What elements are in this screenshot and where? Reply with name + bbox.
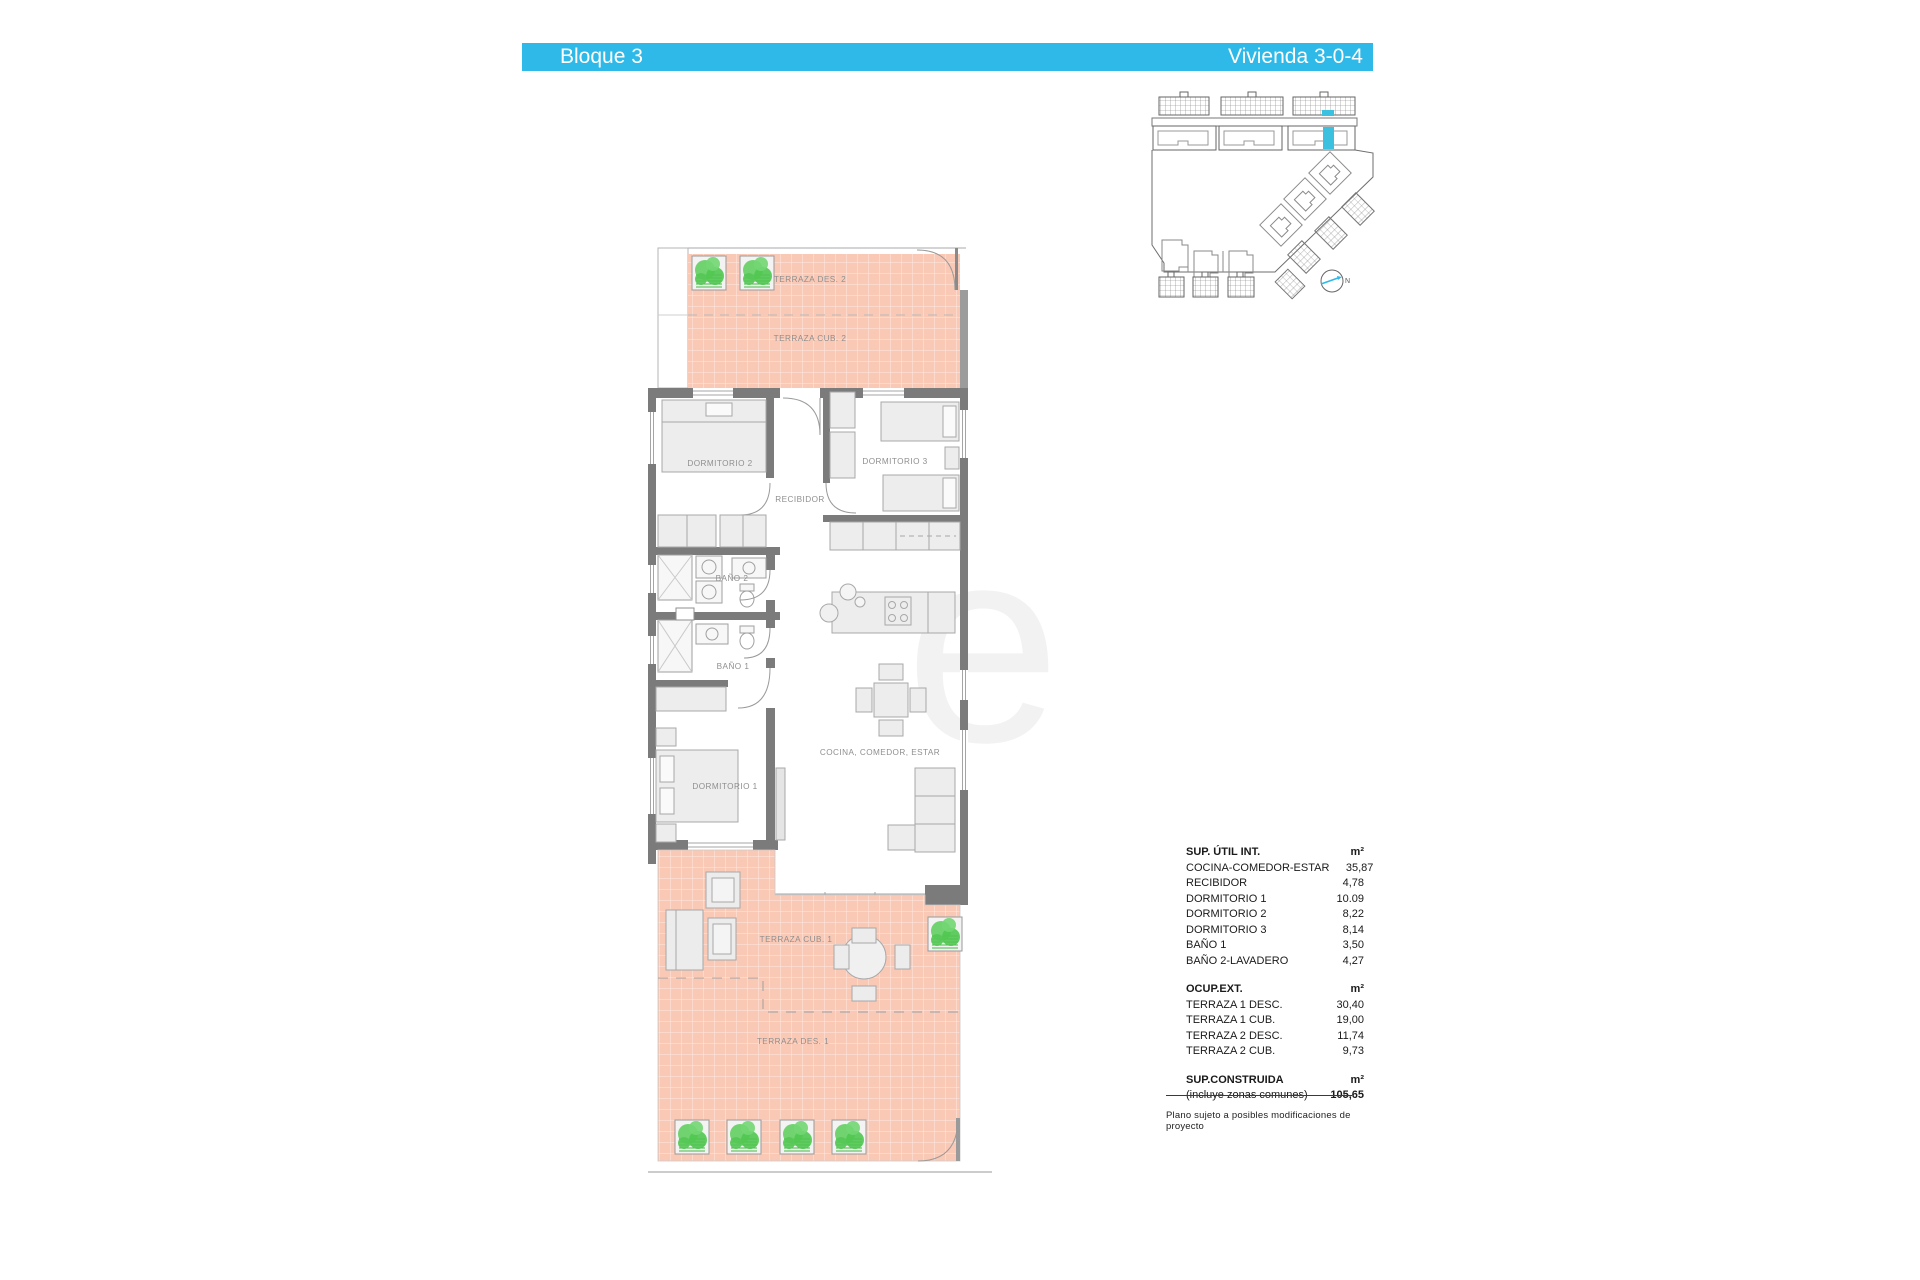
room-label-bano-2: BAÑO 2: [716, 573, 749, 583]
plant-icon: [780, 1120, 814, 1154]
room-label-terraza-cub-2: TERRAZA CUB. 2: [774, 334, 847, 343]
site-key-plan: N: [1140, 85, 1380, 317]
room-label-terraza-cub-1: TERRAZA CUB. 1: [760, 935, 833, 944]
site-strip: [1152, 118, 1357, 126]
plant-icon: [692, 256, 726, 290]
terrace-1-floor: [658, 850, 960, 1161]
room-label-dormitorio-2: DORMITORIO 2: [687, 459, 752, 468]
header-bar: Bloque 3 Vivienda 3-0-4: [522, 43, 1373, 71]
site-highlight-cell: [1322, 110, 1334, 116]
north-arrow-icon: [1321, 278, 1338, 284]
table-section: SUP. ÚTIL INT.m²COCINA-COMEDOR-ESTAR35,8…: [1186, 845, 1364, 969]
terrace-2-area: TERRAZA DES. 2 TERRAZA CUB. 2: [658, 248, 968, 388]
table-row: TERRAZA 1 DESC.30,40: [1186, 998, 1364, 1014]
site-boundary: [1152, 150, 1373, 272]
room-label-bano-1: BAÑO 1: [717, 661, 750, 671]
site-villas: [1162, 240, 1253, 277]
room-label-recibidor: RECIBIDOR: [775, 495, 825, 504]
table-section-header: SUP. ÚTIL INT.m²: [1186, 845, 1364, 861]
floor-plan: TERRAZA DES. 2 TERRAZA CUB. 2: [648, 240, 992, 1180]
table-row: DORMITORIO 110.09: [1186, 892, 1364, 908]
room-label-terraza-des-2: TERRAZA DES. 2: [774, 275, 846, 284]
room-label-cocina: COCINA, COMEDOR, ESTAR: [820, 748, 940, 757]
room-label-dormitorio-1: DORMITORIO 1: [692, 782, 757, 791]
table-section-header: OCUP.EXT.m²: [1186, 982, 1364, 998]
room-label-dormitorio-3: DORMITORIO 3: [862, 457, 927, 466]
table-row: DORMITORIO 38,14: [1186, 923, 1364, 939]
table-row: COCINA-COMEDOR-ESTAR35,87: [1186, 861, 1364, 877]
table-row: RECIBIDOR4,78: [1186, 876, 1364, 892]
room-label-terraza-des-1: TERRAZA DES. 1: [757, 1037, 829, 1046]
plant-icon: [740, 256, 774, 290]
site-highlight-unit: [1323, 127, 1334, 149]
north-indicator: N: [1321, 270, 1350, 292]
table-row: TERRAZA 2 DESC.11,74: [1186, 1029, 1364, 1045]
table-footnote: Plano sujeto a posibles modificaciones d…: [1166, 1110, 1352, 1132]
area-table: SUP. ÚTIL INT.m²COCINA-COMEDOR-ESTAR35,8…: [1186, 845, 1364, 1117]
plant-icon: [832, 1120, 866, 1154]
plant-icon: [727, 1120, 761, 1154]
plant-icon: [928, 917, 962, 951]
area-table-footer: Plano sujeto a posibles modificaciones d…: [1186, 1086, 1364, 1132]
table-row: TERRAZA 2 CUB.9,73: [1186, 1044, 1364, 1060]
table-row: DORMITORIO 28,22: [1186, 907, 1364, 923]
plant-icon: [675, 1120, 709, 1154]
table-row: TERRAZA 1 CUB.19,00: [1186, 1013, 1364, 1029]
table-row: BAÑO 2-LAVADERO4,27: [1186, 954, 1364, 970]
terrace-2-door-leaf: [955, 248, 958, 290]
block-title: Bloque 3: [560, 45, 643, 69]
north-label: N: [1345, 278, 1350, 285]
table-section: OCUP.EXT.m²TERRAZA 1 DESC.30,40TERRAZA 1…: [1186, 982, 1364, 1060]
unit-title: Vivienda 3-0-4: [1228, 45, 1363, 69]
site-bottom-grids: [1159, 272, 1254, 297]
table-row: BAÑO 13,50: [1186, 938, 1364, 954]
